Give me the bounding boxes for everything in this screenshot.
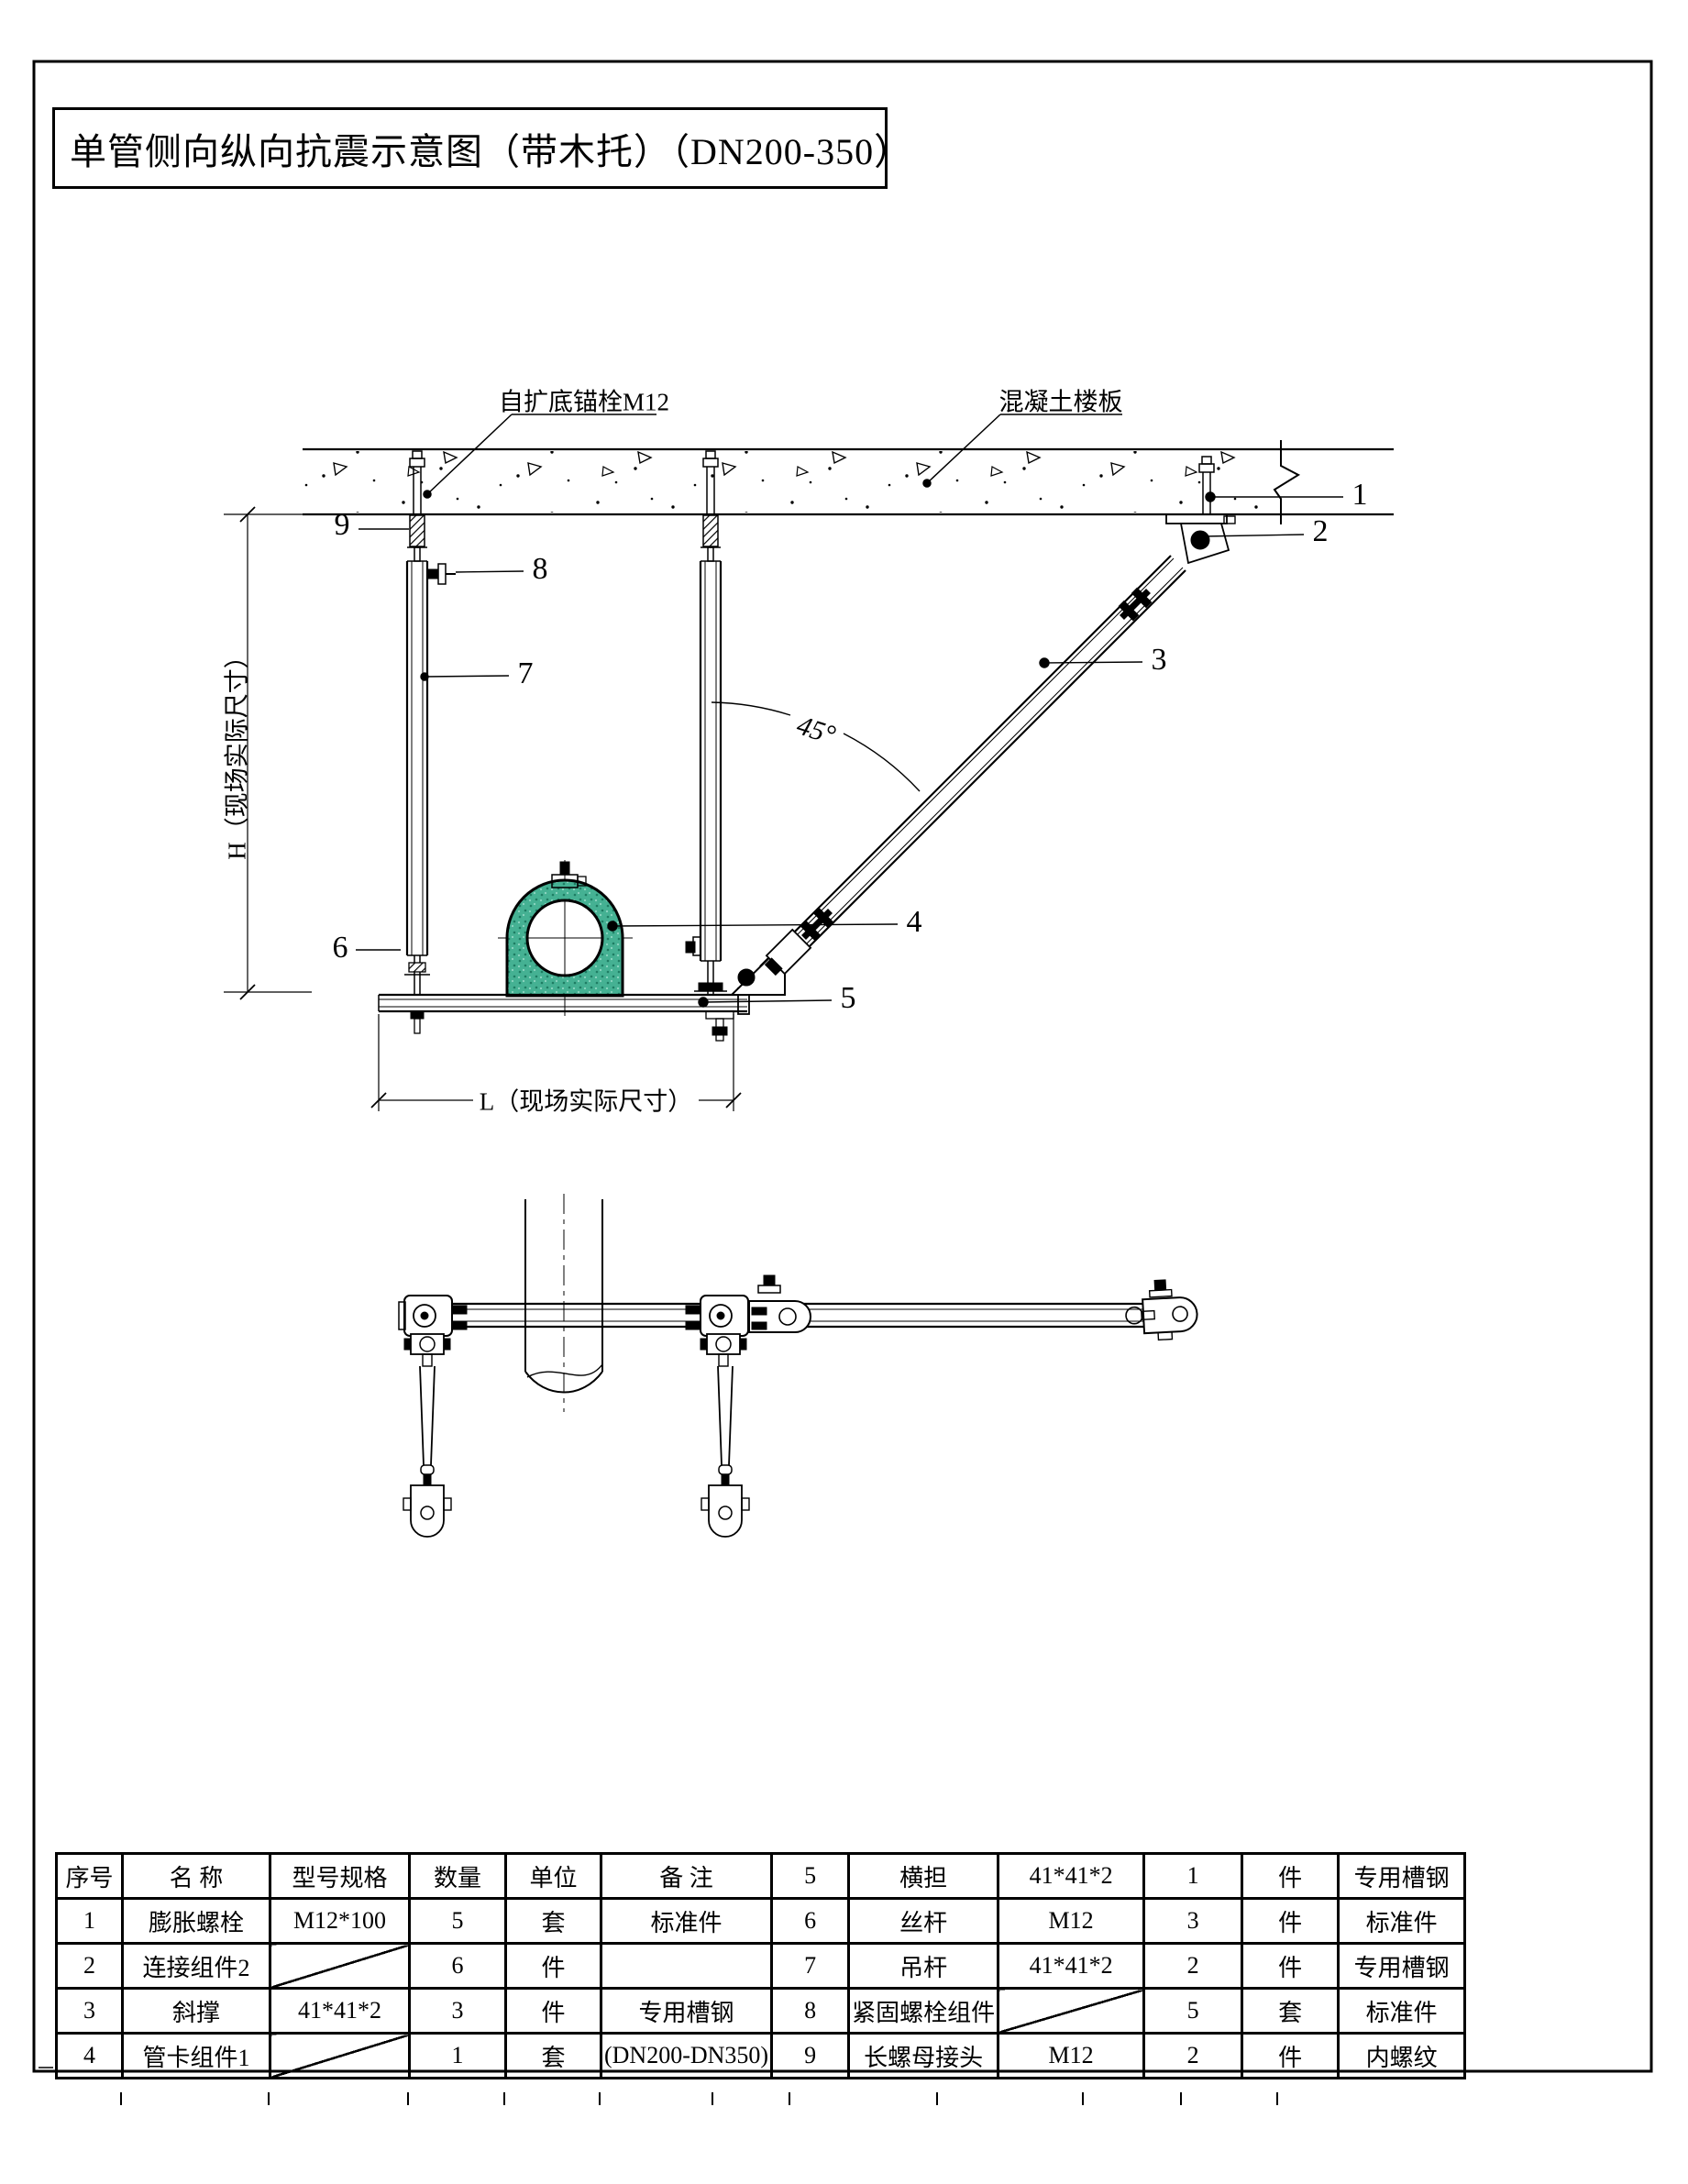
cell-spec: 41*41*2 bbox=[998, 1944, 1144, 1989]
callout-9: 9 bbox=[335, 508, 350, 543]
hanger-rod-left bbox=[404, 561, 456, 1033]
plan-view bbox=[399, 1194, 1198, 1537]
cell-note: 标准件 bbox=[1339, 1899, 1465, 1944]
cell-spec: 41*41*2 bbox=[998, 1854, 1144, 1899]
table-row: 3 斜撑 41*41*2 3 件 专用槽钢 8 紧固螺栓组件 5 套 标准件 bbox=[57, 1989, 1465, 2034]
cell-note: 专用槽钢 bbox=[1339, 1944, 1465, 1989]
title-block: 单管侧向纵向抗震示意图（带木托）（DN200-350） bbox=[52, 107, 888, 189]
cell-name: 吊杆 bbox=[849, 1944, 998, 1989]
callout-5: 5 bbox=[841, 981, 856, 1016]
cell-qty: 2 bbox=[1144, 2034, 1242, 2079]
cell-no: 6 bbox=[772, 1899, 849, 1944]
cell-note: 标准件 bbox=[601, 1899, 772, 1944]
cell-spec-slash bbox=[270, 1944, 410, 1989]
cell-unit: 件 bbox=[1242, 1854, 1339, 1899]
header-unit: 单位 bbox=[506, 1854, 601, 1899]
plan-strap-right bbox=[701, 1366, 749, 1537]
cell-unit: 套 bbox=[506, 1899, 601, 1944]
header-qty: 数量 bbox=[410, 1854, 506, 1899]
cell-unit: 件 bbox=[506, 1989, 601, 2034]
callout-1: 1 bbox=[1352, 478, 1368, 513]
callout-leaders bbox=[356, 492, 1343, 1007]
cell-spec: M12 bbox=[998, 2034, 1144, 2079]
cell-qty: 2 bbox=[1144, 1944, 1242, 1989]
label-anchor-bolt: 自扩底锚栓M12 bbox=[499, 382, 669, 418]
callout-6: 6 bbox=[333, 931, 348, 965]
cell-name: 长螺母接头 bbox=[849, 2034, 998, 2079]
cell-no: 7 bbox=[772, 1944, 849, 1989]
cell-spec-slash bbox=[270, 2034, 410, 2079]
diagonal-brace bbox=[732, 514, 1235, 995]
table-row: 4 管卡组件1 1 套 (DN200-DN350) 9 长螺母接头 M12 2 … bbox=[57, 2034, 1465, 2079]
label-concrete-slab: 混凝土楼板 bbox=[999, 382, 1123, 418]
cell-spec: 41*41*2 bbox=[270, 1989, 410, 2034]
table-row: 1 膨胀螺栓 M12*100 5 套 标准件 6 丝杆 M12 3 件 标准件 bbox=[57, 1899, 1465, 1944]
callout-8: 8 bbox=[533, 552, 548, 587]
cell-no: 5 bbox=[772, 1854, 849, 1899]
cell-unit: 套 bbox=[1242, 1989, 1339, 2034]
cell-qty: 6 bbox=[410, 1944, 506, 1989]
cell-qty: 1 bbox=[410, 2034, 506, 2079]
cell-no: 8 bbox=[772, 1989, 849, 2034]
cell-unit: 件 bbox=[1242, 1944, 1339, 1989]
cell-name: 丝杆 bbox=[849, 1899, 998, 1944]
plan-brace-end bbox=[1124, 1278, 1198, 1341]
cell-note bbox=[601, 1944, 772, 1989]
cell-spec-slash bbox=[998, 1989, 1144, 2034]
label-dim-l: L（现场实际尺寸） bbox=[480, 1082, 693, 1118]
cell-note: 内螺纹 bbox=[1339, 2034, 1465, 2079]
cell-unit: 件 bbox=[1242, 2034, 1339, 2079]
cell-qty: 3 bbox=[1144, 1899, 1242, 1944]
break-line bbox=[1274, 440, 1298, 524]
table-row: 序号 名 称 型号规格 数量 单位 备 注 5 横担 41*41*2 1 件 专… bbox=[57, 1854, 1465, 1899]
callout-4: 4 bbox=[907, 905, 922, 940]
cell-no: 3 bbox=[57, 1989, 123, 2034]
cell-name: 管卡组件1 bbox=[123, 2034, 270, 2079]
callout-7: 7 bbox=[518, 656, 534, 691]
header-no: 序号 bbox=[57, 1854, 123, 1899]
page-title: 单管侧向纵向抗震示意图（带木托）（DN200-350） bbox=[70, 122, 911, 175]
cell-no: 9 bbox=[772, 2034, 849, 2079]
plan-strap-left bbox=[403, 1366, 451, 1537]
cell-note: 标准件 bbox=[1339, 1989, 1465, 2034]
cell-no: 4 bbox=[57, 2034, 123, 2079]
table-row: 2 连接组件2 6 件 7 吊杆 41*41*2 2 件 专用槽钢 bbox=[57, 1944, 1465, 1989]
cell-unit: 件 bbox=[506, 1944, 601, 1989]
hanger-rod-mid bbox=[686, 561, 734, 1041]
header-note: 备 注 bbox=[601, 1854, 772, 1899]
cell-qty: 5 bbox=[410, 1899, 506, 1944]
cell-unit: 套 bbox=[506, 2034, 601, 2079]
cell-spec: M12*100 bbox=[270, 1899, 410, 1944]
cell-name: 横担 bbox=[849, 1854, 998, 1899]
cell-name: 斜撑 bbox=[123, 1989, 270, 2034]
cell-qty: 1 bbox=[1144, 1854, 1242, 1899]
parts-table: 序号 名 称 型号规格 数量 单位 备 注 5 横担 41*41*2 1 件 专… bbox=[55, 1852, 1466, 2079]
brace-bolt-upper bbox=[1115, 584, 1155, 624]
cell-unit: 件 bbox=[1242, 1899, 1339, 1944]
cell-name: 膨胀螺栓 bbox=[123, 1899, 270, 1944]
plan-connector-mid bbox=[686, 1275, 811, 1366]
label-dim-h: H（现场实际尺寸） bbox=[217, 644, 253, 860]
cell-note: (DN200-DN350) bbox=[601, 2034, 772, 2079]
cell-name: 紧固螺栓组件 bbox=[849, 1989, 998, 2034]
cell-note: 专用槽钢 bbox=[601, 1989, 772, 2034]
cell-spec: M12 bbox=[998, 1899, 1144, 1944]
concrete-slab bbox=[303, 440, 1394, 524]
drawing-sheet: 单管侧向纵向抗震示意图（带木托）（DN200-350） 自扩底锚栓M12 混凝土… bbox=[0, 0, 1688, 2184]
callout-3: 3 bbox=[1152, 643, 1167, 678]
cell-no: 1 bbox=[57, 1899, 123, 1944]
callout-2: 2 bbox=[1313, 514, 1329, 549]
cell-note: 专用槽钢 bbox=[1339, 1854, 1465, 1899]
header-spec: 型号规格 bbox=[270, 1854, 410, 1899]
cell-no: 2 bbox=[57, 1944, 123, 1989]
plan-connector-left bbox=[399, 1296, 467, 1366]
pipe-assembly bbox=[498, 860, 633, 1016]
cell-qty: 5 bbox=[1144, 1989, 1242, 2034]
cell-name: 连接组件2 bbox=[123, 1944, 270, 1989]
header-name: 名 称 bbox=[123, 1854, 270, 1899]
sheet-border bbox=[34, 61, 1651, 2071]
cell-qty: 3 bbox=[410, 1989, 506, 2034]
